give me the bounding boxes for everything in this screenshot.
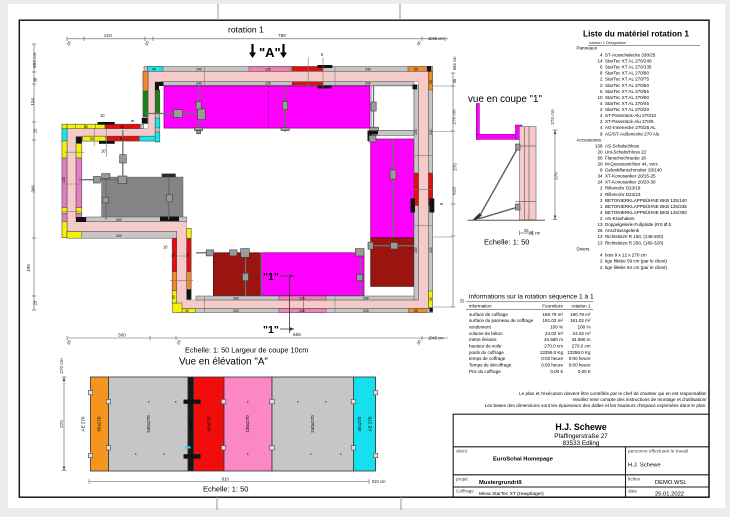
svg-text:poids du coffrage: poids du coffrage: [469, 350, 504, 355]
svg-text:ST-Passstück-Alu 270/5: ST-Passstück-Alu 270/5: [605, 119, 654, 124]
svg-text:270 cm: 270 cm: [452, 109, 457, 124]
svg-text:Anschlussgelenk: Anschlussgelenk: [605, 228, 640, 233]
svg-text:50: 50: [429, 297, 433, 301]
svg-text:tige filetée 64 cm (par le cli: tige filetée 64 cm (par le client): [605, 265, 667, 270]
svg-text:"1": "1": [263, 324, 279, 336]
svg-text:Echelle: 1: 50 Largeur de co: Echelle: 1: 50 Largeur de coupe 10cm: [185, 346, 308, 355]
svg-text:AS-Kranhaken: AS-Kranhaken: [605, 216, 635, 221]
svg-text:90: 90: [172, 253, 176, 257]
svg-text:Richtstütze R 250, (180-320): Richtstütze R 250, (180-320): [605, 240, 664, 245]
svg-text:Accessoires: Accessoires: [577, 138, 602, 143]
svg-text:"1": "1": [263, 271, 279, 283]
svg-text:45x270: 45x270: [357, 416, 362, 431]
svg-text:665: 665: [293, 332, 301, 337]
svg-text:240: 240: [363, 297, 369, 301]
svg-text:Les bases des dimensions sont: Les bases des dimensions sont les épaiss…: [485, 403, 707, 408]
svg-text:information: information: [469, 304, 492, 309]
svg-text:"A": "A": [259, 45, 281, 60]
svg-text:10: 10: [597, 95, 603, 100]
svg-text:H.J. Schewe: H.J. Schewe: [555, 422, 606, 432]
svg-text:13: 13: [597, 234, 603, 239]
svg-text:100 %: 100 %: [550, 325, 563, 330]
svg-text:135: 135: [299, 297, 305, 301]
svg-text:240: 240: [365, 67, 371, 71]
svg-text:240: 240: [429, 247, 433, 253]
svg-text:210: 210: [104, 33, 112, 38]
svg-text:Uni-Schalschloss 22: Uni-Schalschloss 22: [605, 149, 647, 154]
svg-text:266: 266: [31, 185, 36, 193]
svg-text:34.580 m: 34.580 m: [544, 337, 563, 342]
svg-text:20: 20: [33, 128, 38, 133]
svg-text:240: 240: [233, 297, 239, 301]
svg-text:34: 34: [597, 174, 603, 179]
svg-text:20: 20: [460, 298, 465, 303]
svg-text:90: 90: [186, 253, 190, 257]
svg-text:informations sur la rotation: informations sur la rotation séquence 1 …: [469, 294, 594, 301]
svg-text:XT-Konusanker 20/15-25: XT-Konusanker 20/15-25: [605, 174, 656, 179]
svg-text:240: 240: [196, 67, 202, 71]
svg-text:20: 20: [597, 149, 603, 154]
svg-text:240: 240: [365, 82, 371, 86]
svg-text:240: 240: [414, 129, 418, 135]
svg-text:temps de coffrage: temps de coffrage: [469, 356, 506, 361]
svg-text:Doppelgelenk-Fußplatte (RS Ø b: Doppelgelenk-Fußplatte (RS Ø b: [605, 222, 672, 227]
svg-text:Echelle: 1: 50: Echelle: 1: 50: [203, 485, 248, 494]
svg-text:Temps de décoffrage: Temps de décoffrage: [469, 363, 512, 368]
svg-text:StarTec XT AL 270/20: StarTec XT AL 270/20: [605, 107, 649, 112]
svg-text:180.79 m²: 180.79 m²: [543, 312, 564, 317]
svg-text:270 cm: 270 cm: [59, 358, 64, 373]
svg-text:AG/ST-Außenecke 270 Alu: AG/ST-Außenecke 270 Alu: [605, 131, 660, 136]
svg-text:rotation 1: rotation 1: [228, 25, 264, 35]
svg-text:240: 240: [116, 218, 122, 222]
svg-text:Panneaux: Panneaux: [577, 45, 598, 50]
svg-text:Mustergrundriß: Mustergrundriß: [479, 480, 522, 486]
svg-text:Fourniture: Fourniture: [542, 304, 563, 309]
svg-text:240: 240: [196, 82, 202, 86]
svg-text:Liste du matériel rotation 1: Liste du matériel rotation 1: [583, 29, 689, 39]
svg-text:13359.0 Kg: 13359.0 Kg: [540, 350, 564, 355]
svg-text:13: 13: [597, 240, 603, 245]
svg-text:Désignation: Désignation: [606, 41, 626, 45]
svg-text:fichier: fichier: [628, 477, 641, 482]
svg-text:Le plan et l'exécution doivent: Le plan et l'exécution doivent être cont…: [519, 391, 707, 396]
svg-text:83533 Edling: 83533 Edling: [563, 440, 600, 447]
svg-text:240x270: 240x270: [310, 415, 315, 433]
svg-text:StarTec XT AL 270/50: StarTec XT AL 270/50: [605, 95, 649, 100]
svg-text:181.02 m²: 181.02 m²: [543, 318, 564, 323]
svg-text:EuroSchal Homepage: EuroSchal Homepage: [493, 456, 554, 462]
svg-text:hauteur de voile: hauteur de voile: [469, 344, 502, 349]
svg-text:H.J. Schewe: H.J. Schewe: [628, 462, 661, 468]
svg-text:20: 20: [597, 162, 603, 167]
svg-text:5x270: 5x270: [189, 419, 193, 428]
svg-text:rotation 1: rotation 1: [572, 304, 591, 309]
svg-text:ST-Ausschalecke 330/25: ST-Ausschalecke 330/25: [605, 53, 656, 58]
svg-text:24.02 m³: 24.02 m³: [545, 331, 563, 336]
svg-text:Rillenrohr D23/18: Rillenrohr D23/18: [605, 186, 641, 191]
svg-text:13: 13: [597, 222, 603, 227]
svg-text:tige filetée 59 cm (par le cli: tige filetée 59 cm (par le client): [605, 259, 667, 264]
svg-text:personne effectuant le travail: personne effectuant le travail: [628, 448, 688, 453]
svg-text:BETONIERKLAPPBÜHNE BKB 125/140: BETONIERKLAPPBÜHNE BKB 125/140: [605, 197, 687, 203]
svg-text:10: 10: [101, 149, 106, 154]
svg-text:90: 90: [120, 125, 124, 129]
svg-text:DEMO.WSL: DEMO.WSL: [655, 480, 687, 486]
svg-text:StarTec XT AL 270/135: StarTec XT AL 270/135: [605, 65, 652, 70]
svg-text:date: date: [628, 488, 638, 493]
svg-text:135: 135: [62, 177, 66, 183]
svg-text:270: 270: [453, 163, 458, 171]
svg-text:270: 270: [554, 172, 559, 180]
svg-text:0:00 heure: 0:00 heure: [541, 363, 563, 368]
svg-text:BETONIERKLAPPBÜHNE BKB 125/300: BETONIERKLAPPBÜHNE BKB 125/300: [605, 209, 687, 215]
svg-text:810: 810: [222, 476, 230, 481]
svg-text:34.580 m: 34.580 m: [572, 337, 591, 342]
svg-text:Vue en élévation "A": Vue en élévation "A": [179, 357, 268, 368]
svg-text:StarTec XT AL 270/75: StarTec XT AL 270/75: [605, 77, 649, 82]
svg-text:1045 cm: 1045 cm: [428, 36, 444, 41]
svg-text:135x270: 135x270: [245, 415, 250, 433]
svg-text:100 %: 100 %: [578, 325, 591, 330]
svg-text:AS-Schalschloss: AS-Schalschloss: [605, 143, 640, 148]
svg-text:surface du panneau de coffrage: surface du panneau de coffrage: [469, 318, 534, 323]
svg-text:50: 50: [84, 125, 88, 129]
svg-text:0,00 €: 0,00 €: [578, 369, 591, 374]
svg-text:projet: projet: [456, 477, 468, 482]
svg-text:50: 50: [185, 309, 189, 313]
svg-text:0:00 heure: 0:00 heure: [569, 356, 591, 361]
svg-text:StarTec XT AL 270/90: StarTec XT AL 270/90: [605, 71, 649, 76]
svg-text:Pfaffingerstraße 27: Pfaffingerstraße 27: [554, 433, 608, 440]
svg-text:volume de béton: volume de béton: [469, 331, 503, 336]
svg-text:38: 38: [33, 77, 38, 82]
svg-text:AE 270: AE 270: [81, 416, 86, 431]
svg-text:90x270: 90x270: [207, 416, 212, 431]
svg-text:Echelle: 1: 50: Echelle: 1: 50: [484, 238, 529, 247]
svg-text:240: 240: [429, 129, 433, 135]
svg-text:195: 195: [26, 264, 31, 272]
svg-text:26: 26: [597, 228, 603, 233]
svg-text:55x270: 55x270: [97, 416, 102, 431]
svg-text:Gelenkflanschmutter 20/140: Gelenkflanschmutter 20/140: [605, 168, 662, 173]
svg-text:rendement: rendement: [469, 325, 491, 330]
svg-text:1045 cm: 1045 cm: [428, 335, 444, 340]
svg-text:270.0 cm: 270.0 cm: [572, 344, 591, 349]
svg-text:55: 55: [414, 309, 418, 313]
svg-text:240: 240: [363, 309, 369, 313]
svg-text:24: 24: [597, 180, 603, 185]
svg-text:50: 50: [172, 295, 176, 299]
svg-text:rotation 1: rotation 1: [589, 41, 605, 45]
svg-text:300: 300: [118, 332, 126, 337]
svg-text:Rillenrohr D23/23: Rillenrohr D23/23: [605, 192, 641, 197]
svg-text:36: 36: [452, 78, 457, 83]
svg-text:240x270: 240x270: [146, 415, 151, 433]
svg-text:Veuillez tenir compte des inst: Veuillez tenir compte des instructions d…: [572, 397, 707, 402]
svg-text:StarTec XT AL 270/45: StarTec XT AL 270/45: [605, 101, 649, 106]
svg-text:StarTec XT AL 270/60: StarTec XT AL 270/60: [605, 83, 649, 88]
svg-text:780: 780: [278, 33, 286, 38]
svg-text:StarTec XT AL 270/55: StarTec XT AL 270/55: [605, 89, 649, 94]
svg-text:55: 55: [414, 67, 418, 71]
svg-text:135: 135: [299, 309, 305, 313]
svg-text:14: 14: [597, 59, 603, 64]
svg-text:10: 10: [100, 113, 105, 118]
svg-text:90: 90: [120, 137, 124, 141]
svg-text:629: 629: [452, 187, 457, 195]
svg-text:Flanschschraube 18: Flanschschraube 18: [605, 155, 646, 160]
svg-text:24.02 m³: 24.02 m³: [573, 331, 591, 336]
svg-text:ST-Passstück-Alu 270/10: ST-Passstück-Alu 270/10: [605, 113, 657, 118]
svg-text:270.0 cm: 270.0 cm: [544, 344, 563, 349]
svg-text:AG-Innenecke 270/25 AL: AG-Innenecke 270/25 AL: [605, 125, 656, 130]
svg-text:Coffrage: Coffrage: [456, 488, 474, 493]
svg-text:Richtstütze R 160, (138-200): Richtstütze R 160, (138-200): [605, 234, 664, 239]
svg-text:134: 134: [30, 98, 35, 106]
svg-text:180.79 m²: 180.79 m²: [570, 312, 591, 317]
svg-text:0:00 heure: 0:00 heure: [569, 363, 591, 368]
svg-text:240: 240: [233, 309, 239, 313]
svg-text:55: 55: [429, 80, 433, 84]
svg-text:client: client: [456, 448, 468, 453]
svg-text:181.02 m²: 181.02 m²: [570, 318, 591, 323]
svg-text:138: 138: [595, 143, 603, 148]
svg-text:45: 45: [152, 67, 156, 71]
svg-text:Prix du coffrage: Prix du coffrage: [469, 369, 501, 374]
svg-text:66: 66: [597, 155, 603, 160]
svg-text:13359.0 Kg: 13359.0 Kg: [567, 350, 591, 355]
svg-text:surface de coffrage: surface de coffrage: [469, 312, 508, 317]
svg-text:StarTec XT AL 270/240: StarTec XT AL 270/240: [605, 59, 652, 64]
svg-text:50: 50: [90, 137, 94, 141]
svg-text:0:00 heure: 0:00 heure: [541, 356, 563, 361]
svg-text:BETONIERKLAPPBÜHNE BKB 125/235: BETONIERKLAPPBÜHNE BKB 125/235: [605, 203, 687, 209]
svg-text:135: 135: [265, 82, 271, 86]
svg-text:XT-Konusanker 20/20-30: XT-Konusanker 20/20-30: [605, 180, 656, 185]
svg-text:135: 135: [265, 67, 271, 71]
svg-text:810 cm: 810 cm: [372, 479, 386, 484]
svg-text:AE 270: AE 270: [368, 416, 373, 431]
svg-text:25 cm: 25 cm: [529, 231, 541, 236]
svg-text:25.01.2022: 25.01.2022: [655, 491, 684, 497]
svg-text:bois 9 x 12 x 270 cm: bois 9 x 12 x 270 cm: [605, 253, 647, 258]
svg-text:M-Querausrichter 44, verz.: M-Querausrichter 44, verz.: [605, 162, 659, 167]
svg-text:240: 240: [414, 247, 418, 253]
svg-text:684 cm: 684 cm: [32, 53, 37, 68]
svg-text:0,00 €: 0,00 €: [550, 369, 563, 374]
svg-text:240: 240: [116, 234, 122, 238]
svg-text:270: 270: [59, 420, 64, 428]
svg-text:25: 25: [33, 300, 38, 305]
svg-text:270 cm: 270 cm: [550, 109, 555, 124]
svg-text:Divers: Divers: [577, 247, 591, 252]
svg-text:Meva StarTec XT (Hauptlager): Meva StarTec XT (Hauptlager): [479, 491, 544, 497]
svg-text:10: 10: [163, 245, 168, 250]
svg-text:mètre linéaire: mètre linéaire: [469, 337, 497, 342]
svg-text:684 cm: 684 cm: [452, 56, 457, 70]
